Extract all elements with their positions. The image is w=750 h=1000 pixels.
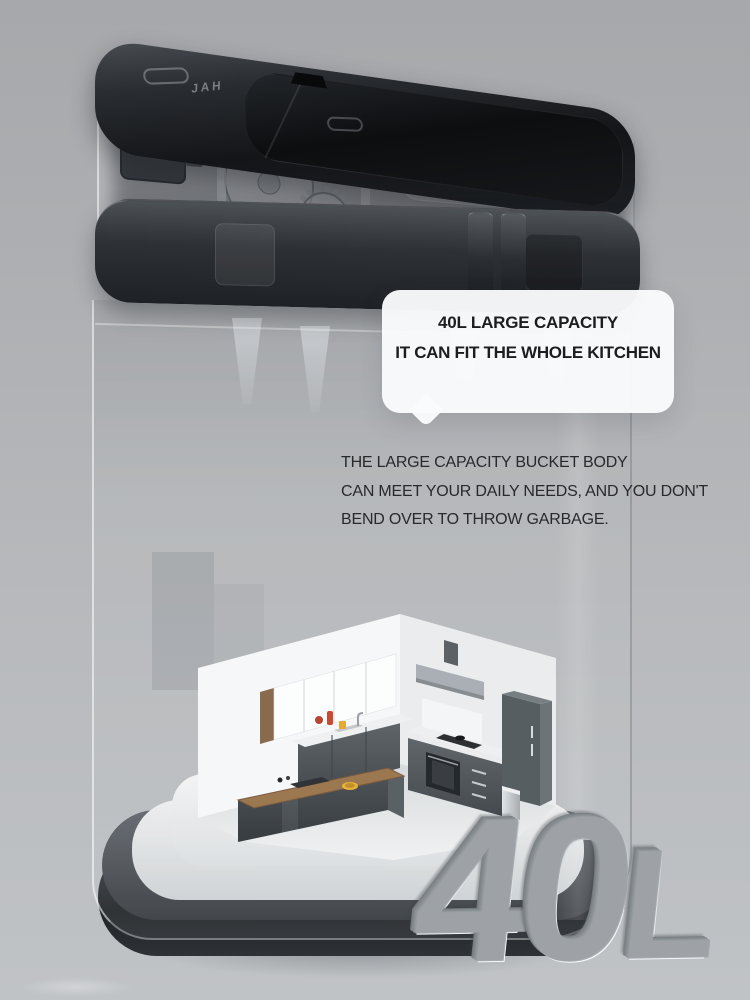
product-poster: JAH (0, 0, 750, 1000)
upper-cabinet-wood-side (260, 688, 274, 744)
caption-line-3: BEND OVER TO THROW GARBAGE. (341, 506, 721, 535)
red-vase (315, 716, 323, 724)
bag-fix-latch (468, 211, 546, 301)
island-pot (278, 778, 283, 783)
callout-line-2: IT CAN FIT THE WHOLE KITCHEN (382, 343, 674, 363)
hood-chimney (444, 640, 458, 666)
fruit-bowl-inner (345, 783, 355, 788)
island-pot (286, 776, 290, 780)
sensor-button-outline (326, 116, 363, 131)
pot (455, 736, 465, 741)
caption-line-2: CAN MEET YOUR DAILY NEEDS, AND YOU DON'T (341, 478, 721, 507)
caption-line-1: THE LARGE CAPACITY BUCKET BODY (341, 449, 721, 478)
yellow-cup (339, 721, 346, 729)
capacity-3d-badge: 40L (407, 785, 723, 995)
capacity-unit: L (615, 818, 719, 993)
caption-text-block: THE LARGE CAPACITY BUCKET BODY CAN MEET … (341, 449, 721, 535)
brand-logo-text: JAH (191, 78, 224, 96)
rim-clip-detail (215, 223, 275, 287)
callout-bubble: 40L LARGE CAPACITY IT CAN FIT THE WHOLE … (382, 290, 674, 413)
sensor-button-outline (142, 67, 190, 85)
red-vase (327, 711, 333, 725)
callout-line-1: 40L LARGE CAPACITY (382, 313, 674, 333)
